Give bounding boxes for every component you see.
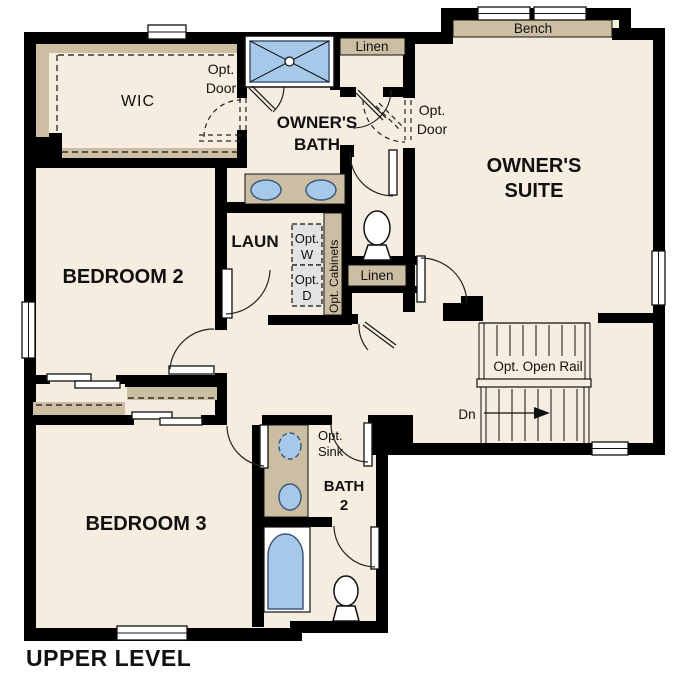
- opt-washer-label-1: Opt.: [295, 231, 320, 246]
- toilet-owners-bath: [363, 211, 391, 260]
- owners-bath-vanity: [245, 174, 345, 204]
- bypass-door-panel: [160, 418, 202, 425]
- linen-upper-label: Linen: [355, 39, 388, 54]
- door-leaf: [222, 269, 232, 318]
- window: [478, 7, 530, 20]
- opt-cabinets-label: Opt. Cabinets: [327, 240, 341, 313]
- bypass-door-panel: [75, 381, 120, 388]
- room-label-owners-suite-2: SUITE: [505, 180, 564, 202]
- floor-plan-drawing: Bench Linen Linen: [0, 0, 687, 687]
- room-label-bedroom3: BEDROOM 3: [85, 513, 206, 535]
- door-leaf: [169, 366, 214, 374]
- linen-closet-hall: Linen: [348, 265, 406, 286]
- shower: [245, 36, 334, 87]
- window: [652, 251, 665, 305]
- bypass-door-panel: [47, 374, 91, 381]
- room-label-bath2-1: BATH: [324, 478, 365, 495]
- bench: Bench: [453, 20, 612, 37]
- door-leaf: [371, 527, 379, 569]
- room-label-bedroom2: BEDROOM 2: [62, 266, 183, 288]
- opt-sink-label-1: Opt.: [318, 428, 343, 443]
- bathtub: [264, 527, 310, 612]
- window: [117, 626, 187, 640]
- sink: [251, 180, 281, 200]
- door-leaf: [389, 150, 397, 195]
- sink: [279, 484, 301, 510]
- opt-washer-label-2: W: [301, 247, 314, 262]
- opt-open-rail-label: Opt. Open Rail: [493, 359, 582, 374]
- room-label-owners-bath-2: BATH: [294, 135, 340, 154]
- room-label-laundry: LAUN: [231, 232, 278, 251]
- window: [534, 7, 586, 20]
- plan-title: UPPER LEVEL: [26, 645, 191, 671]
- opt-dryer-label-2: D: [302, 288, 311, 303]
- floor-plan-upper-level: Bench Linen Linen: [0, 0, 687, 687]
- toilet-bath2: [333, 576, 359, 621]
- opt-sink-label-2: Sink: [318, 444, 344, 459]
- suite-opt-door-label-1: Opt.: [419, 102, 445, 118]
- window: [592, 442, 628, 455]
- bench-label: Bench: [514, 21, 552, 36]
- stairs-down-label: Dn: [458, 407, 475, 422]
- room-label-wic: WIC: [121, 93, 155, 110]
- optional-sink: [279, 433, 301, 459]
- wic-opt-door-label-1: Opt.: [208, 61, 234, 77]
- room-label-bath2-2: 2: [340, 497, 348, 514]
- room-label-owners-suite-1: OWNER'S: [487, 155, 582, 177]
- wic-opt-door-label-2: Door: [206, 80, 237, 96]
- sink: [306, 180, 336, 200]
- window: [148, 25, 186, 39]
- opt-dryer-label-1: Opt.: [295, 272, 320, 287]
- window: [22, 302, 35, 358]
- linen-hall-label: Linen: [360, 268, 393, 283]
- door-leaf: [364, 423, 372, 466]
- suite-opt-door-label-2: Door: [417, 121, 448, 137]
- door-leaf: [417, 256, 425, 302]
- bath2-vanity: [264, 425, 308, 517]
- stair-rail: [477, 379, 591, 387]
- door-leaf: [260, 425, 268, 468]
- room-label-owners-bath-1: OWNER'S: [277, 113, 358, 132]
- linen-closet-upper: Linen: [340, 38, 405, 55]
